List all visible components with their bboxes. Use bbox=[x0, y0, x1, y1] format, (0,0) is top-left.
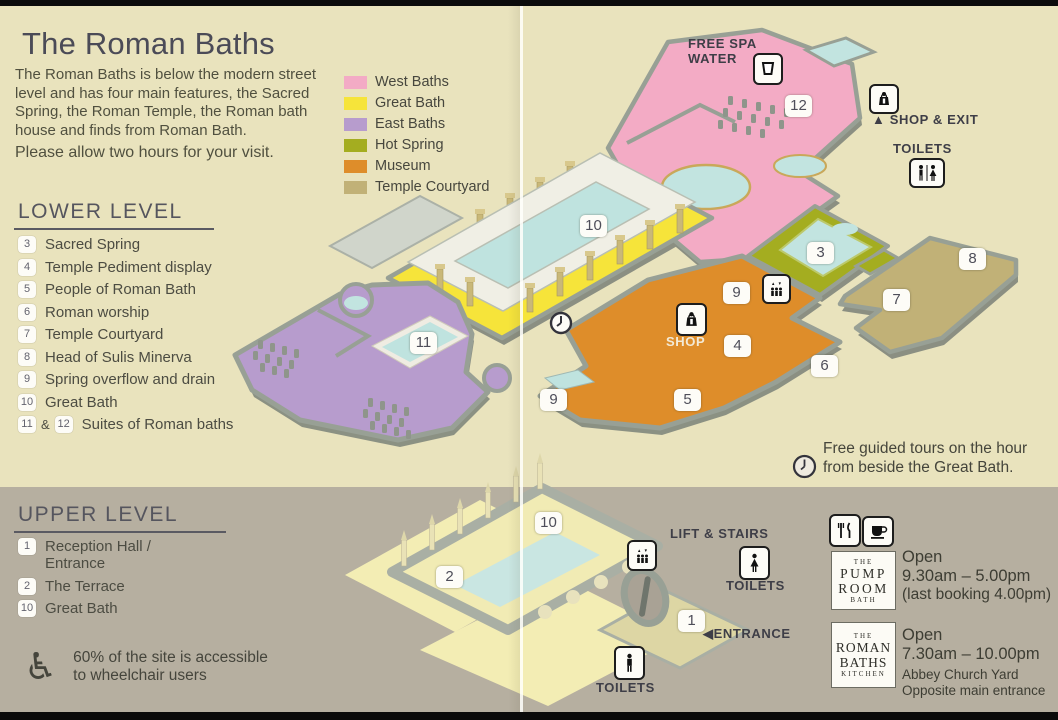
clock-icon-map bbox=[549, 311, 573, 335]
tours-note-line2: from beside the Great Bath. bbox=[823, 459, 1013, 477]
free-spa-water-label: FREE SPAWATER bbox=[688, 36, 757, 66]
page-title: The Roman Baths bbox=[22, 26, 275, 62]
pump-room-logo: THE PUMP ROOM BATH bbox=[831, 551, 896, 610]
toilets-mid-label: TOILETS bbox=[726, 578, 785, 593]
lift-icon-upper bbox=[627, 540, 657, 571]
toilets-top-label: TOILETS bbox=[893, 141, 952, 156]
accessibility-note: ♿ 60% of the site is accessible to wheel… bbox=[24, 645, 268, 688]
legend-swatch bbox=[344, 76, 367, 89]
tours-note-line1: Free guided tours on the hour bbox=[823, 440, 1027, 458]
map-marker-10: 10 bbox=[580, 215, 607, 237]
item-number: 10 bbox=[18, 600, 36, 617]
lower-level-heading: LOWER LEVEL bbox=[18, 200, 183, 224]
upper-level-list: 1Reception Hall / Entrance 2The Terrace … bbox=[18, 538, 205, 623]
item-number: 9 bbox=[18, 371, 36, 388]
legend-swatch bbox=[344, 160, 367, 173]
list-item: 5People of Roman Bath bbox=[18, 281, 233, 298]
legend-item: East Baths bbox=[344, 116, 489, 132]
item-number: 3 bbox=[18, 236, 36, 253]
pump-room-hours: Open 9.30am – 5.00pm (last booking 4.00p… bbox=[902, 548, 1051, 604]
restaurant-cutlery-icon bbox=[829, 514, 861, 547]
item-number: 4 bbox=[18, 259, 36, 276]
map-marker-9b: 9 bbox=[540, 389, 567, 411]
clock-icon-tours bbox=[792, 454, 817, 479]
map-marker-upper-10: 10 bbox=[535, 512, 562, 534]
scan-trim-top bbox=[0, 0, 1058, 6]
wheelchair-icon: ♿ bbox=[24, 645, 57, 688]
item-number: 6 bbox=[18, 304, 36, 321]
map-marker-9a: 9 bbox=[723, 282, 750, 304]
legend-swatch bbox=[344, 97, 367, 110]
map-marker-4: 4 bbox=[724, 335, 751, 357]
list-item: 11&12Suites of Roman baths bbox=[18, 416, 233, 433]
legend-swatch bbox=[344, 118, 367, 131]
up-arrow-icon: ▲ bbox=[872, 112, 885, 127]
toilets-icon-bottom bbox=[614, 646, 645, 680]
item-number: 8 bbox=[18, 349, 36, 366]
scan-trim-bottom bbox=[0, 712, 1058, 720]
entrance-label: ◀ENTRANCE bbox=[703, 626, 791, 642]
item-number: 11 bbox=[18, 416, 36, 433]
shop-bag-icon-museum bbox=[676, 303, 707, 336]
map-marker-5: 5 bbox=[674, 389, 701, 411]
map-marker-12: 12 bbox=[785, 95, 812, 117]
map-marker-upper-2: 2 bbox=[436, 566, 463, 588]
cafe-cup-icon bbox=[862, 516, 894, 547]
intro-paragraph: The Roman Baths is below the modern stre… bbox=[15, 66, 349, 140]
toilets-mw-icon bbox=[909, 158, 945, 188]
map-legend: West Baths Great Bath East Baths Hot Spr… bbox=[344, 74, 489, 200]
legend-swatch bbox=[344, 181, 367, 194]
item-number: 7 bbox=[18, 326, 36, 343]
spa-water-cup-icon bbox=[753, 53, 783, 85]
list-item: 8Head of Sulis Minerva bbox=[18, 349, 233, 366]
kitchen-logo: THE ROMAN BATHS KITCHEN bbox=[831, 622, 896, 688]
upper-level-heading: UPPER LEVEL bbox=[18, 503, 178, 527]
lower-level-list: 3Sacred Spring 4Temple Pediment display … bbox=[18, 236, 233, 439]
shop-bag-icon bbox=[869, 84, 899, 114]
legend-item: Hot Spring bbox=[344, 137, 489, 153]
lower-level-rule bbox=[14, 228, 214, 230]
list-item: 6Roman worship bbox=[18, 304, 233, 321]
map-marker-8: 8 bbox=[959, 248, 986, 270]
map-marker-6: 6 bbox=[811, 355, 838, 377]
upper-level-rule bbox=[14, 531, 226, 533]
list-item: 10Great Bath bbox=[18, 394, 233, 411]
legend-item: Museum bbox=[344, 158, 489, 174]
map-marker-11: 11 bbox=[410, 332, 437, 354]
list-item: 7Temple Courtyard bbox=[18, 326, 233, 343]
item-number: 12 bbox=[55, 416, 73, 433]
map-marker-3: 3 bbox=[807, 242, 834, 264]
shop-exit-label: ▲ SHOP & EXIT bbox=[872, 112, 978, 127]
list-item: 9Spring overflow and drain bbox=[18, 371, 233, 388]
kitchen-hours: Open 7.30am – 10.00pm Abbey Church Yard … bbox=[902, 626, 1045, 698]
list-item: 3Sacred Spring bbox=[18, 236, 233, 253]
item-number: 5 bbox=[18, 281, 36, 298]
list-item: 1Reception Hall / Entrance bbox=[18, 538, 205, 572]
item-number: 1 bbox=[18, 538, 36, 555]
lift-icon-lower bbox=[762, 274, 791, 304]
map-marker-upper-1: 1 bbox=[678, 610, 705, 632]
lift-stairs-label: LIFT & STAIRS bbox=[670, 526, 769, 541]
list-item: 4Temple Pediment display bbox=[18, 259, 233, 276]
left-arrow-icon: ◀ bbox=[703, 626, 714, 641]
legend-item: Temple Courtyard bbox=[344, 179, 489, 195]
toilets-icon-mid bbox=[739, 546, 770, 580]
shop-label: SHOP bbox=[666, 334, 705, 349]
list-item: 10Great Bath bbox=[18, 600, 205, 617]
item-number: 10 bbox=[18, 394, 36, 411]
legend-item: West Baths bbox=[344, 74, 489, 90]
legend-swatch bbox=[344, 139, 367, 152]
item-number: 2 bbox=[18, 578, 36, 595]
legend-item: Great Bath bbox=[344, 95, 489, 111]
visit-duration-note: Please allow two hours for your visit. bbox=[15, 144, 349, 162]
map-marker-7: 7 bbox=[883, 289, 910, 311]
toilets-bottom-label: TOILETS bbox=[596, 680, 655, 695]
brochure-page: The Roman Baths The Roman Baths is below… bbox=[0, 0, 1058, 720]
list-item: 2The Terrace bbox=[18, 578, 205, 595]
